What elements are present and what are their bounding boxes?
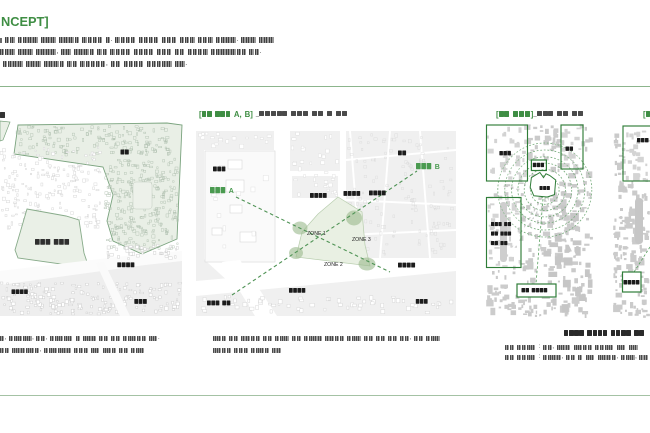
svg-text:ZONE 2: ZONE 2 [324, 262, 343, 268]
svg-text:B: B [435, 164, 440, 171]
svg-text:ZONE 1: ZONE 1 [307, 231, 326, 237]
svg-text:A: A [229, 188, 234, 195]
svg-text:ZONE 3: ZONE 3 [352, 237, 371, 243]
